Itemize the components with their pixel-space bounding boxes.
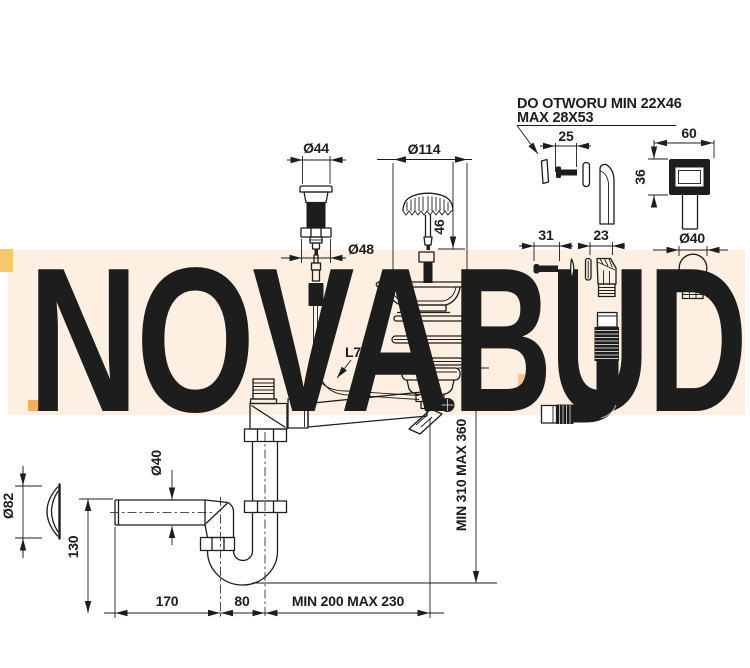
dim-label: Ø40 [148,450,164,476]
overflow-elbow-side [600,164,614,224]
sink-siphon-technical-drawing: NOVA BUD Ø44 Ø48 L7 [0,0,750,668]
dim-label: Ø114 [408,141,441,157]
dim-label: MIN 310 MAX 360 [453,419,469,532]
dim-label: 60 [681,125,697,141]
overflow-row1 [542,160,615,225]
dim-label: L700 [345,344,377,360]
dim-label: 46 [431,219,447,235]
dim-outlet-pipe-diameter: Ø40 [148,450,172,545]
overflow-screw [556,167,561,179]
dim-label: 25 [558,128,574,144]
dim-label: Ø40 [679,230,705,246]
dim-label: 130 [65,535,81,558]
strainer-hatch [407,196,448,211]
overflow-cover [669,159,710,229]
screw2 [534,264,540,274]
overflow-washer [583,163,590,187]
dim-plug-diameter: Ø44 [287,140,346,184]
dim-outlet-height: 130 [65,499,113,613]
dim-cover-height: 36 [632,147,668,207]
overflow-plate [542,160,549,184]
dim-label: MIN 200 MAX 230 [292,593,405,609]
dim-label: 23 [593,227,609,243]
dim-rosette-diameter: Ø82 [0,466,42,558]
hole-size-note: DO OTWORU MIN 22X46 MAX 28X53 [517,96,682,154]
curved-washer [571,259,574,279]
dim-label: 31 [538,227,554,243]
dim-label: Ø48 [348,241,374,257]
note-line2: MAX 28X53 [517,110,594,126]
dim-cover-width: 60 [654,125,714,158]
watermark-accent [0,249,13,272]
dim-label: 36 [632,169,648,185]
dim-label: 80 [234,593,250,609]
dim-label: 170 [156,593,179,609]
rosette-side-view [47,485,60,539]
dim-label: Ø44 [303,140,329,156]
dim-label: Ø82 [0,493,16,519]
